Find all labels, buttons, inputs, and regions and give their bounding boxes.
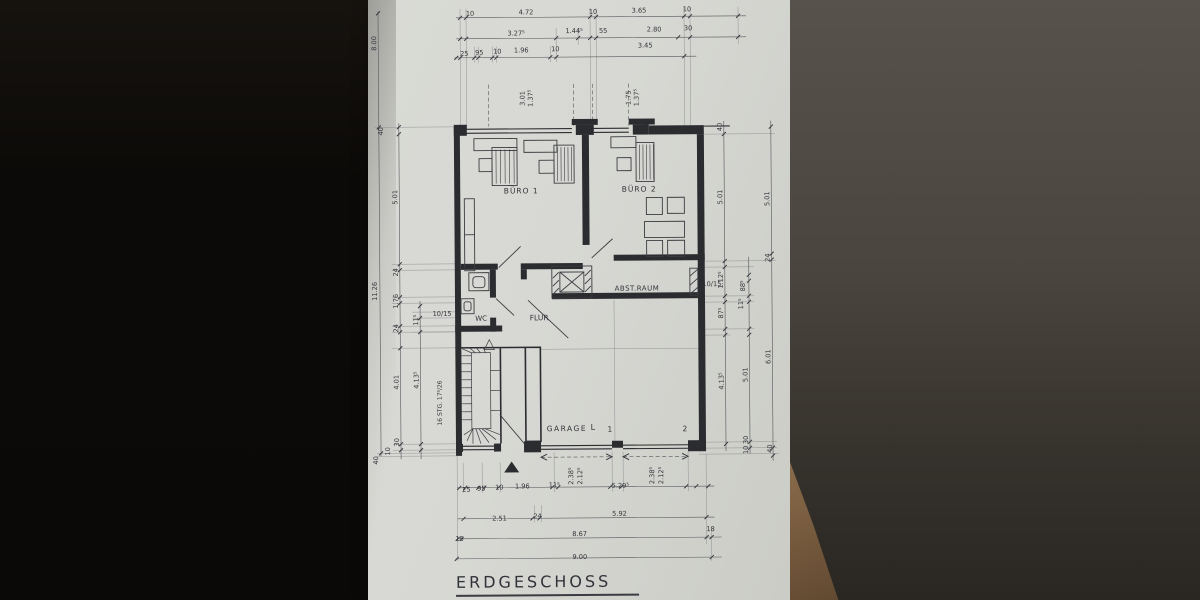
dim-label: 5.01 xyxy=(716,190,724,205)
dim-label: 3.65 xyxy=(632,7,647,15)
arrowheads xyxy=(541,453,688,460)
dim-label: 30 xyxy=(393,438,401,446)
dim-label: 3.45 xyxy=(638,41,653,49)
dim-label: 10 xyxy=(384,447,392,455)
dim-label: 24 xyxy=(392,268,400,276)
photographed-floor-plan: 104.72103.65103.27⁵1.44⁵552.80302595101.… xyxy=(0,0,1200,600)
dim-label: 2.38⁵ xyxy=(648,466,656,484)
plan-title: ERDGESCHOSS xyxy=(456,572,639,597)
sink xyxy=(461,299,474,314)
dim-label: 30 xyxy=(742,436,750,444)
staircase xyxy=(461,340,501,444)
dim-label: 30 xyxy=(684,24,692,32)
dim-label: 40 xyxy=(372,456,380,464)
dim-label: 40 xyxy=(377,127,385,135)
dim-label: 95 xyxy=(477,485,485,493)
furniture-buero1 xyxy=(464,138,575,271)
dim-label: 24 xyxy=(533,512,541,520)
floor-plan-drawing: 104.72103.65103.27⁵1.44⁵552.80302595101.… xyxy=(366,0,792,600)
dim-label: 10 xyxy=(495,484,503,492)
room-label: GARAGE xyxy=(547,424,587,433)
dim-label: 8.00 xyxy=(370,36,378,51)
dim-label: 1.12⁵ xyxy=(717,271,725,289)
dim-label: 16 STG. 17⁸/26 xyxy=(437,380,444,425)
dim-label: 1.37⁵ xyxy=(633,89,641,107)
dim-label: 1.96 xyxy=(515,482,530,490)
wood-grain-hatch xyxy=(496,144,654,183)
dim-label: 87⁵ xyxy=(717,307,725,318)
room-label: BÜRO 1 xyxy=(504,186,539,195)
dim-label: 24 xyxy=(764,253,772,261)
dark-background-right xyxy=(790,0,1200,600)
dim-label: 2.80 xyxy=(647,25,662,33)
room-label: 1 xyxy=(607,425,612,434)
dim-label: 4.72 xyxy=(519,8,534,16)
room-label: L xyxy=(591,423,596,432)
dim-label: 10 xyxy=(466,10,474,18)
dim-label: 2.12⁵ xyxy=(657,466,665,484)
north-arrow xyxy=(504,461,519,472)
dim-label: 4.13⁵ xyxy=(718,372,726,390)
wood-table-corner xyxy=(790,450,868,600)
dim-label: 11⁵ xyxy=(549,481,560,489)
dim-label: 5.01 xyxy=(391,190,399,205)
dim-label: 1.75 xyxy=(625,90,633,105)
dim-label: 2.38⁵ xyxy=(567,467,575,485)
labels-layer: 104.72103.65103.27⁵1.44⁵552.80302595101.… xyxy=(369,5,775,563)
room-label: ABST.RAUM xyxy=(615,284,660,292)
dim-label: 10 xyxy=(589,8,597,16)
plan-drawing-area: 104.72103.65103.27⁵1.44⁵552.80302595101.… xyxy=(366,0,792,600)
dim-label: 10/15 xyxy=(433,310,452,318)
dim-label: 40 xyxy=(766,444,774,452)
dim-label: 11⁵ xyxy=(412,314,420,325)
dim-label: 5.01 xyxy=(763,191,771,206)
dim-label: 9.00 xyxy=(572,553,587,561)
room-label: 2 xyxy=(682,424,687,433)
dim-label: 88⁵ xyxy=(739,280,747,291)
dark-background-left xyxy=(0,0,368,600)
door-swings xyxy=(496,239,614,445)
dim-label: 1.44⁵ xyxy=(565,27,583,35)
wc-fixtures xyxy=(461,273,489,314)
dim-label: 11.26 xyxy=(371,282,379,301)
dim-label: 5.92 xyxy=(612,510,627,518)
dim-label: 3.27⁵ xyxy=(507,29,525,37)
room-label: BÜRO 2 xyxy=(622,184,657,193)
dim-label: 15 xyxy=(455,535,463,543)
dim-label: 10 xyxy=(742,446,750,454)
dim-label: 40 xyxy=(716,123,724,131)
dim-label: 24 xyxy=(392,324,400,332)
dim-label: 95 xyxy=(475,49,483,57)
right-wall-pillar xyxy=(690,268,698,295)
dim-label: 1.96 xyxy=(514,46,529,54)
dim-label: 6.01 xyxy=(764,349,772,364)
dim-label: 10 xyxy=(551,45,559,53)
dim-label: 2.51 xyxy=(492,515,507,523)
dim-label: 25 xyxy=(460,50,468,58)
dim-label: 18 xyxy=(706,525,714,533)
paper-sheet: 104.72103.65103.27⁵1.44⁵552.80302595101.… xyxy=(368,0,790,600)
dim-label: 10 xyxy=(493,48,501,56)
dim-label: 8.67 xyxy=(572,530,587,538)
room-label: FLUR xyxy=(530,313,549,322)
dim-label: 11⁵ xyxy=(737,298,745,309)
dim-label: 25 xyxy=(462,486,470,494)
dim-label: 2.12⁵ xyxy=(576,467,584,485)
room-label: WC xyxy=(475,315,487,323)
dim-label: 1.37⁵ xyxy=(527,89,535,107)
dim-label: 10 xyxy=(683,5,691,13)
dim-label: 3.01 xyxy=(519,91,527,106)
dim-label: 5.01 xyxy=(741,367,749,382)
dim-label: 55 xyxy=(599,27,607,35)
dim-label: 1.76 xyxy=(392,294,400,309)
dim-label: 4.01 xyxy=(393,375,401,390)
furniture-buero2 xyxy=(611,136,685,257)
dim-label: 4.13⁵ xyxy=(412,371,420,389)
dim-label: 5.29⁵ xyxy=(612,482,630,490)
